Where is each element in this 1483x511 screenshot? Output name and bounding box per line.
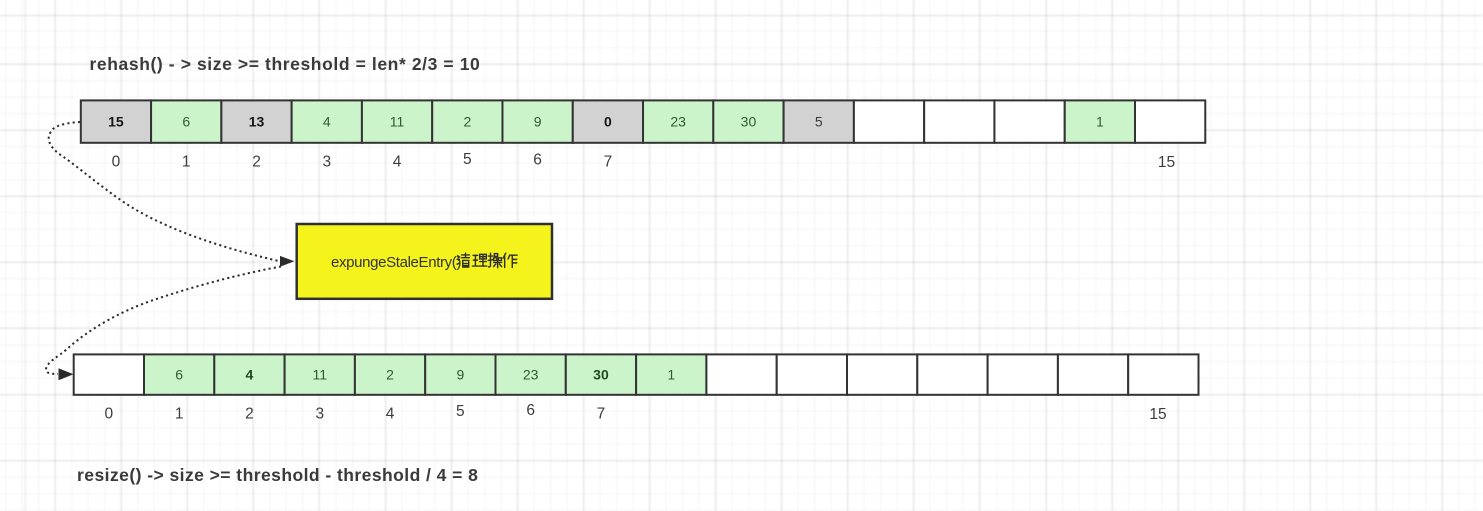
svg-text:11: 11 (312, 367, 327, 383)
svg-text:4: 4 (393, 154, 402, 171)
svg-text:2: 2 (386, 367, 394, 383)
svg-text:5: 5 (463, 151, 472, 168)
svg-text:resize() -> size >= threshold: resize() -> size >= threshold - threshol… (77, 465, 478, 485)
svg-text:5: 5 (456, 403, 465, 420)
svg-text:7: 7 (597, 406, 606, 423)
svg-text:2: 2 (252, 154, 261, 171)
svg-text:6: 6 (175, 367, 183, 383)
svg-text:1: 1 (175, 406, 184, 423)
svg-text:6: 6 (533, 152, 542, 169)
svg-text:6: 6 (526, 402, 535, 419)
svg-text:6: 6 (182, 114, 190, 130)
svg-text:1: 1 (1096, 114, 1104, 130)
svg-text:23: 23 (523, 367, 539, 383)
svg-text:2: 2 (463, 114, 471, 130)
svg-text:3: 3 (322, 154, 331, 171)
svg-text:expungeStaleEntry(): expungeStaleEntry() (331, 254, 461, 271)
svg-text:5: 5 (815, 114, 823, 130)
svg-text:15: 15 (1158, 154, 1175, 171)
svg-text:0: 0 (105, 406, 114, 423)
svg-text:4: 4 (246, 367, 254, 383)
svg-text:30: 30 (741, 114, 757, 130)
svg-text:1: 1 (667, 367, 675, 383)
svg-text:23: 23 (670, 114, 686, 130)
svg-text:9: 9 (456, 367, 464, 383)
svg-text:4: 4 (323, 114, 331, 130)
svg-text:15: 15 (1149, 406, 1166, 423)
svg-text:0: 0 (604, 114, 612, 130)
svg-text:3: 3 (315, 406, 324, 423)
svg-text:rehash() - > size >= threshold: rehash() - > size >= threshold = len* 2/… (90, 54, 481, 74)
svg-text:2: 2 (245, 406, 254, 423)
svg-text:11: 11 (390, 114, 405, 130)
svg-text:1: 1 (182, 154, 191, 171)
svg-text:4: 4 (386, 406, 395, 423)
svg-text:0: 0 (112, 154, 121, 171)
svg-text:30: 30 (593, 367, 609, 383)
svg-text:7: 7 (604, 154, 613, 171)
svg-text:15: 15 (108, 114, 124, 130)
svg-text:9: 9 (534, 114, 542, 130)
svg-text:13: 13 (249, 114, 265, 130)
